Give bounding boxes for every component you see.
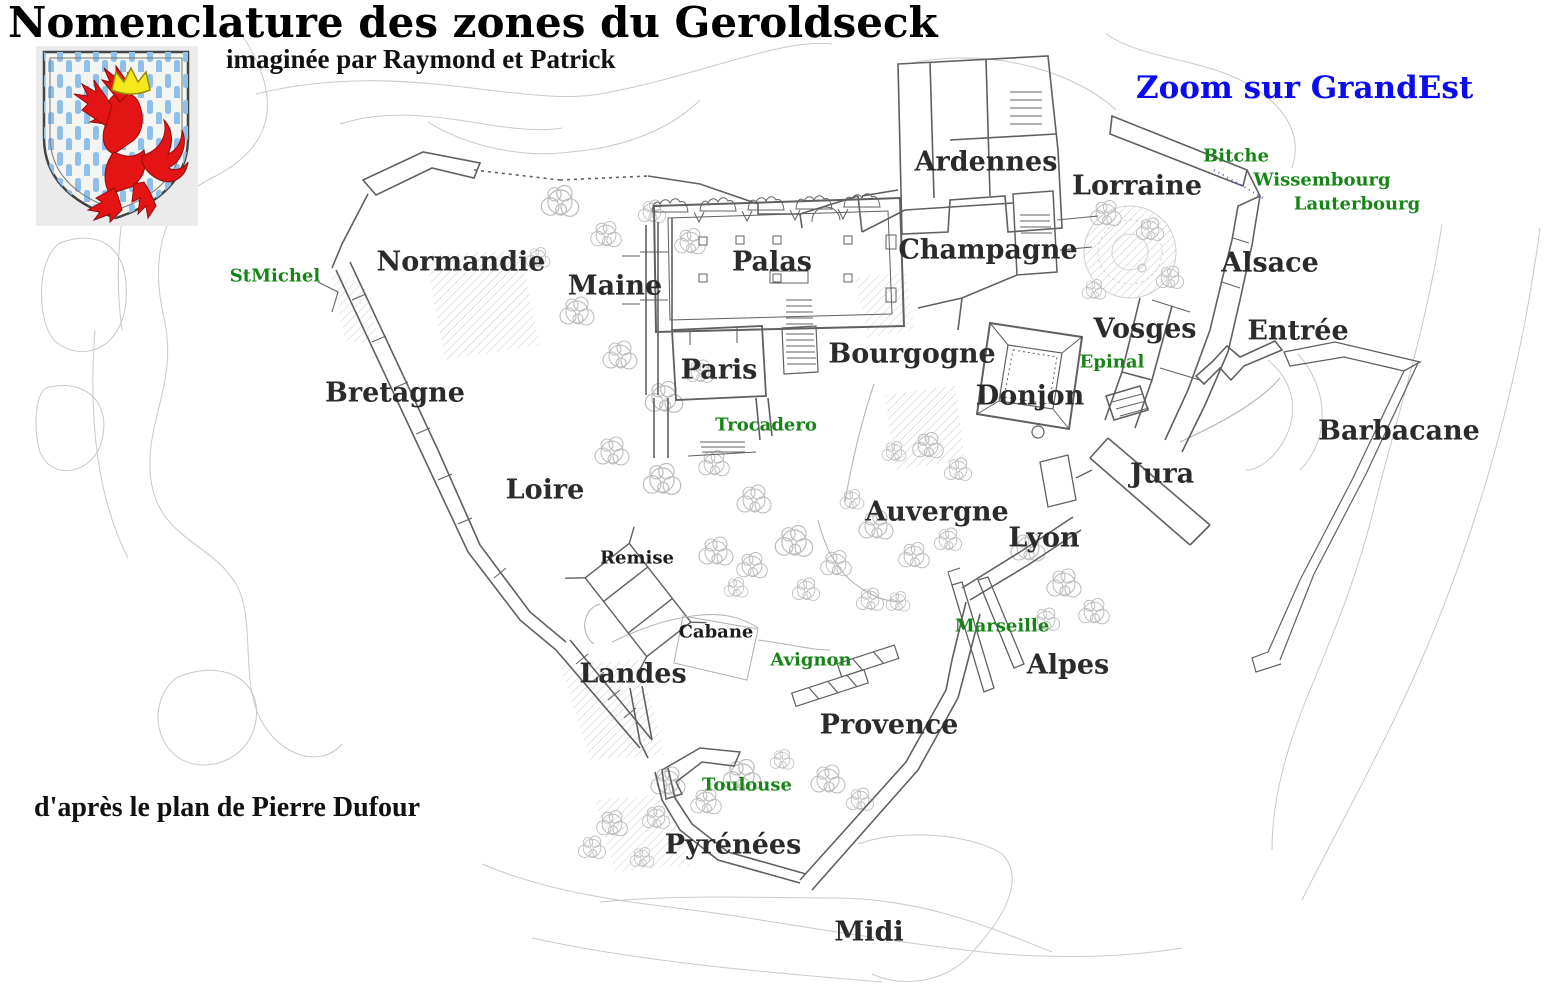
- poi-label-avignon: Avignon: [770, 650, 851, 671]
- poi-label-stmichel: StMichel: [230, 266, 320, 287]
- poi-label-toulouse: Toulouse: [702, 775, 792, 796]
- zone-label-barbacane: Barbacane: [1318, 416, 1480, 447]
- zone-label-provence: Provence: [820, 710, 959, 741]
- poi-label-wissembourg: Wissembourg: [1253, 170, 1390, 191]
- zone-label-vosges: Vosges: [1094, 314, 1197, 345]
- zone-label-cabane: Cabane: [679, 622, 754, 643]
- zone-label-ardennes: Ardennes: [915, 147, 1058, 178]
- page: Nomenclature des zones du Geroldseck ima…: [0, 0, 1563, 994]
- zone-label-midi: Midi: [834, 917, 903, 948]
- map-labels: NormandieMainePalasArdennesLorraineChamp…: [0, 0, 1563, 994]
- zone-label-pyrenees: Pyrénées: [665, 830, 802, 861]
- zone-label-auvergne: Auvergne: [865, 497, 1008, 528]
- zone-label-remise: Remise: [600, 548, 674, 569]
- zone-label-bretagne: Bretagne: [325, 378, 465, 409]
- poi-label-trocadero: Trocadero: [715, 415, 817, 436]
- zone-label-loire: Loire: [506, 475, 585, 506]
- zone-label-entree: Entrée: [1247, 316, 1348, 347]
- zone-label-jura: Jura: [1130, 459, 1194, 490]
- poi-label-marseille: Marseille: [955, 616, 1050, 637]
- zone-label-landes: Landes: [579, 659, 686, 690]
- poi-label-epinal: Epinal: [1080, 352, 1145, 373]
- zone-label-champagne: Champagne: [898, 235, 1077, 266]
- poi-label-lauterbourg: Lauterbourg: [1294, 194, 1420, 215]
- zone-label-lyon: Lyon: [1008, 523, 1079, 554]
- zone-label-maine: Maine: [568, 271, 662, 302]
- zone-label-normandie: Normandie: [377, 247, 546, 278]
- zone-label-bourgogne: Bourgogne: [828, 339, 995, 370]
- zone-label-palas: Palas: [732, 247, 812, 278]
- zone-label-alpes: Alpes: [1027, 650, 1109, 681]
- zone-label-alsace: Alsace: [1221, 248, 1319, 279]
- poi-label-bitche: Bitche: [1203, 146, 1269, 167]
- zone-label-paris: Paris: [681, 355, 758, 386]
- zone-label-lorraine: Lorraine: [1072, 171, 1202, 202]
- zone-label-donjon: Donjon: [976, 381, 1084, 412]
